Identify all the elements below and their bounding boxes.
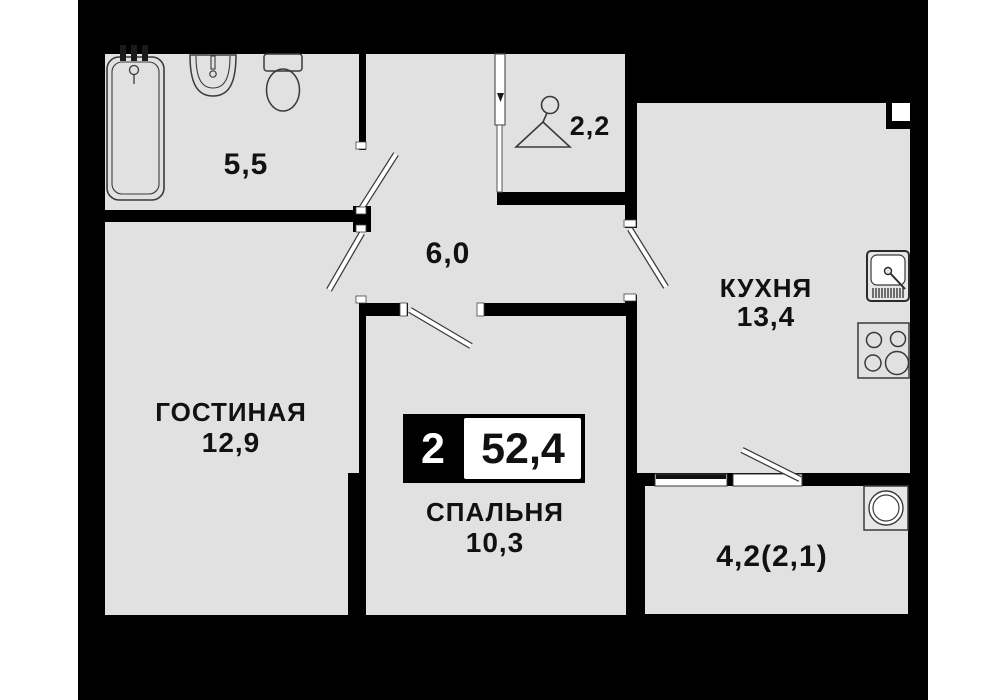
balcony-area-label: 4,2(2,1) bbox=[716, 540, 827, 573]
bathroom-area-label: 5,5 bbox=[224, 148, 269, 181]
badge-total-area: 52,4 bbox=[481, 425, 565, 473]
apartment-badge: 2 52,4 bbox=[403, 414, 585, 483]
shaft-notch bbox=[892, 103, 910, 121]
badge-room-count: 2 bbox=[421, 425, 445, 473]
living-room-name-label: ГОСТИНАЯ bbox=[155, 397, 307, 427]
wall-living-bedroom-lower bbox=[348, 473, 366, 615]
wardrobe-area-label: 2,2 bbox=[570, 111, 611, 141]
bedroom-name-label: СПАЛЬНЯ bbox=[426, 497, 564, 527]
floorplan-image: 5,5 2,2 6,0 ГОСТИНАЯ 12,9 КУХНЯ 13,4 СПА… bbox=[0, 0, 1006, 700]
bathtub-icon bbox=[107, 45, 164, 200]
living-room-area-label: 12,9 bbox=[202, 427, 261, 458]
hallway-area-label: 6,0 bbox=[426, 237, 471, 270]
wall-wardrobe-bottom bbox=[497, 192, 625, 205]
kitchen-area-label: 13,4 bbox=[737, 301, 796, 332]
kitchen-sink-icon bbox=[867, 251, 909, 301]
washing-machine-icon bbox=[864, 486, 908, 530]
window-icon bbox=[655, 474, 727, 486]
bedroom-area-label: 10,3 bbox=[466, 527, 525, 558]
floorplan-svg: 5,5 2,2 6,0 ГОСТИНАЯ 12,9 КУХНЯ 13,4 СПА… bbox=[0, 0, 1006, 700]
wall-bedroom-balcony bbox=[626, 473, 645, 614]
kitchen-name-label: КУХНЯ bbox=[720, 273, 813, 303]
